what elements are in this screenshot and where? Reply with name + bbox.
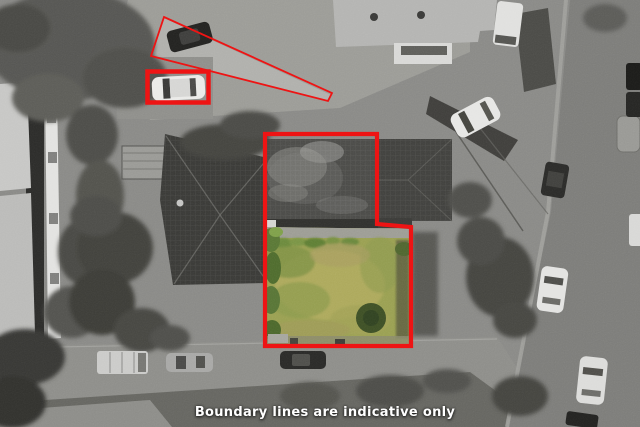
aerial-photo-canvas xyxy=(0,0,640,427)
aerial-photo: Boundary lines are indicative only xyxy=(0,0,640,427)
caption: Boundary lines are indicative only xyxy=(195,405,455,420)
